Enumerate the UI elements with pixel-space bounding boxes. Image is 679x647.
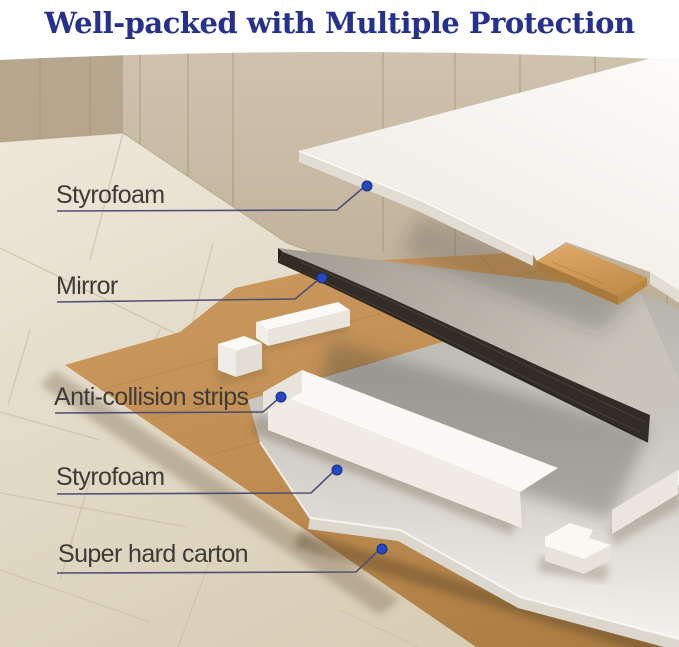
callout-dot-styrofoam-bottom: [332, 465, 342, 475]
label-super-hard-carton: Super hard carton: [58, 540, 248, 568]
callout-dot-anti-collision: [276, 392, 286, 402]
label-mirror: Mirror: [56, 272, 118, 300]
callout-dot-styrofoam-top: [362, 181, 372, 191]
label-anti-collision-strips: Anti-collision strips: [54, 383, 248, 411]
label-styrofoam-bottom: Styrofoam: [56, 463, 165, 491]
callout-dot-carton: [377, 544, 387, 554]
left-wall: [0, 40, 123, 142]
product-packaging-infographic: Well-packed with Multiple Protection: [0, 0, 679, 647]
callout-dot-mirror: [317, 273, 327, 283]
label-styrofoam-top: Styrofoam: [56, 181, 165, 209]
